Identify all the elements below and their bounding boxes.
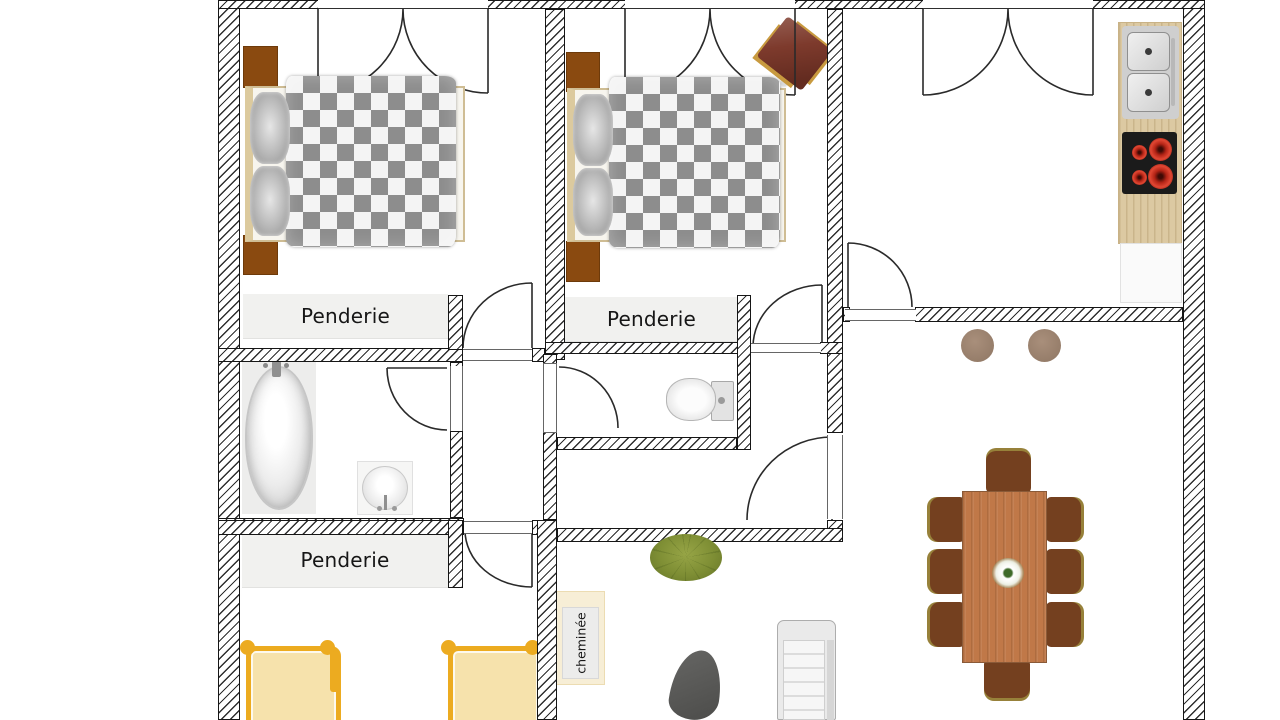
pillow bbox=[250, 92, 290, 164]
door-opening bbox=[845, 309, 916, 321]
wall-kitchen-living bbox=[915, 307, 1183, 322]
door-living[interactable] bbox=[747, 437, 832, 520]
pillow bbox=[573, 94, 613, 166]
door-opening bbox=[827, 435, 843, 519]
wall-stub bbox=[448, 295, 463, 350]
potted-plant[interactable] bbox=[650, 534, 722, 581]
door-opening bbox=[463, 349, 532, 361]
window-opening bbox=[318, 0, 488, 9]
wall-kidsroom-living bbox=[537, 520, 557, 720]
door-leaf[interactable] bbox=[543, 363, 557, 433]
door-opening bbox=[464, 521, 532, 534]
wall-outer-right bbox=[1183, 0, 1205, 720]
door-bedroom1[interactable] bbox=[463, 283, 532, 348]
wall-bedroom1-bedroom2 bbox=[545, 9, 565, 360]
door-bedroom2[interactable] bbox=[753, 285, 822, 347]
wall-stub bbox=[448, 520, 463, 588]
window-kitchen[interactable] bbox=[923, 9, 1093, 95]
checkered-duvet[interactable] bbox=[286, 76, 456, 247]
floor-plan: Penderie Penderie Penderie chemi bbox=[0, 0, 1280, 720]
window-opening bbox=[625, 0, 795, 9]
door-kidsroom[interactable] bbox=[465, 530, 532, 587]
wall-kidsroom-top bbox=[218, 520, 463, 535]
pillow bbox=[250, 166, 290, 236]
door-opening bbox=[450, 366, 463, 431]
wall-segment bbox=[820, 342, 843, 354]
wall-bedroom1-bathroom bbox=[218, 348, 463, 362]
window-opening bbox=[923, 0, 1093, 9]
wall-bathroom-hall bbox=[450, 431, 463, 518]
wall-wc-right bbox=[737, 295, 751, 450]
door-wc[interactable] bbox=[559, 367, 618, 428]
door-opening bbox=[751, 343, 821, 353]
wall-bedroom2-wc bbox=[545, 342, 750, 354]
pillow bbox=[573, 168, 613, 236]
door-kitchen[interactable] bbox=[848, 243, 912, 307]
checkered-duvet[interactable] bbox=[609, 77, 780, 248]
wall-wc-bottom bbox=[557, 437, 737, 450]
wall-bedroom2-hall bbox=[827, 9, 843, 433]
door-bathroom[interactable] bbox=[387, 368, 447, 430]
